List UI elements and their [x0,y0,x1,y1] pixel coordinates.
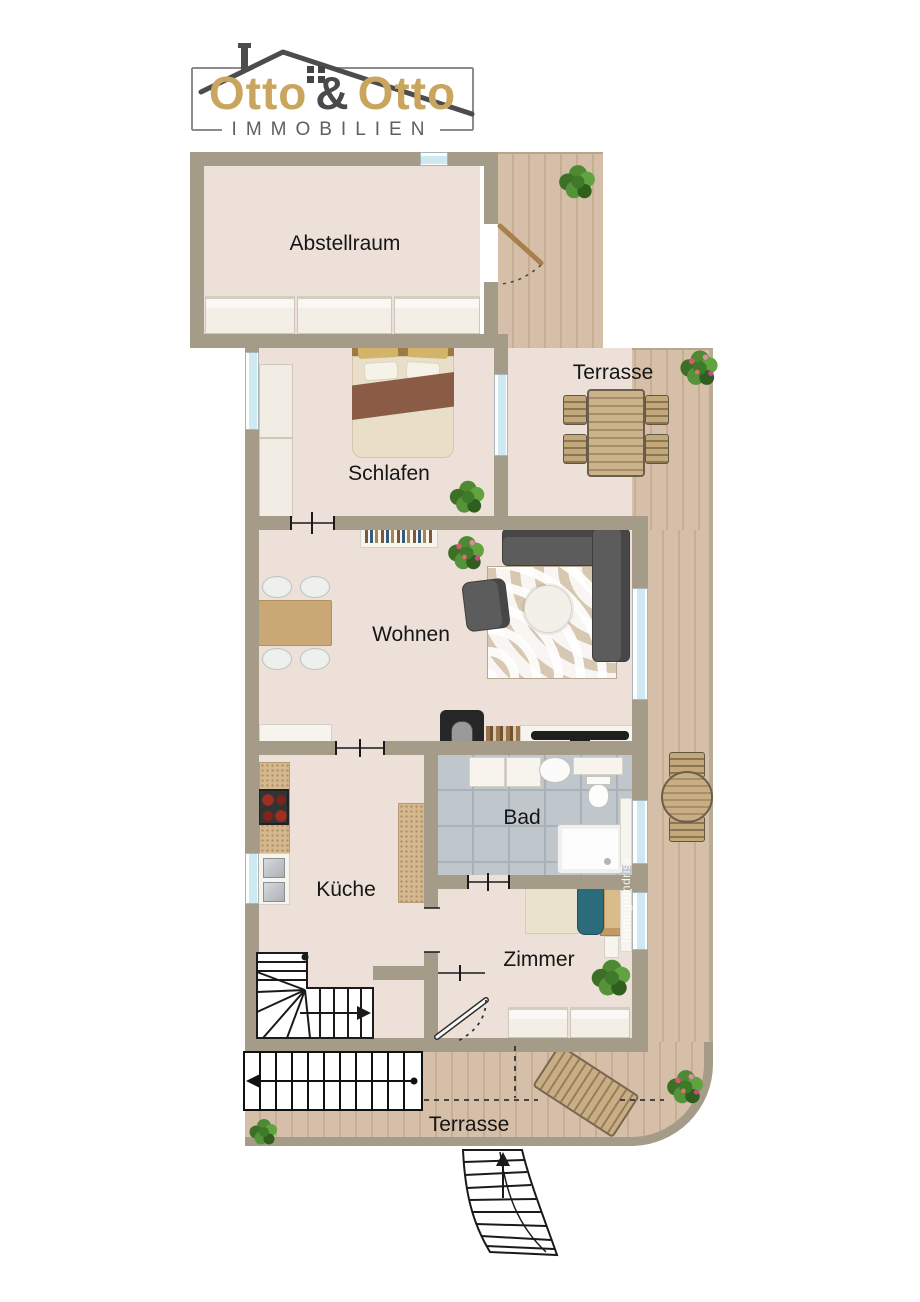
logo-subtitle: IMMOBILIEN [185,119,480,141]
logo-word2: Otto [358,67,457,119]
logo-ampersand: & [307,67,357,119]
logo-graphic [0,0,920,1302]
logo-title: Otto&Otto [185,70,480,116]
floorplan-page: Otto&Otto IMMOBILIEN [0,0,920,1302]
logo-word1: Otto [209,67,308,119]
